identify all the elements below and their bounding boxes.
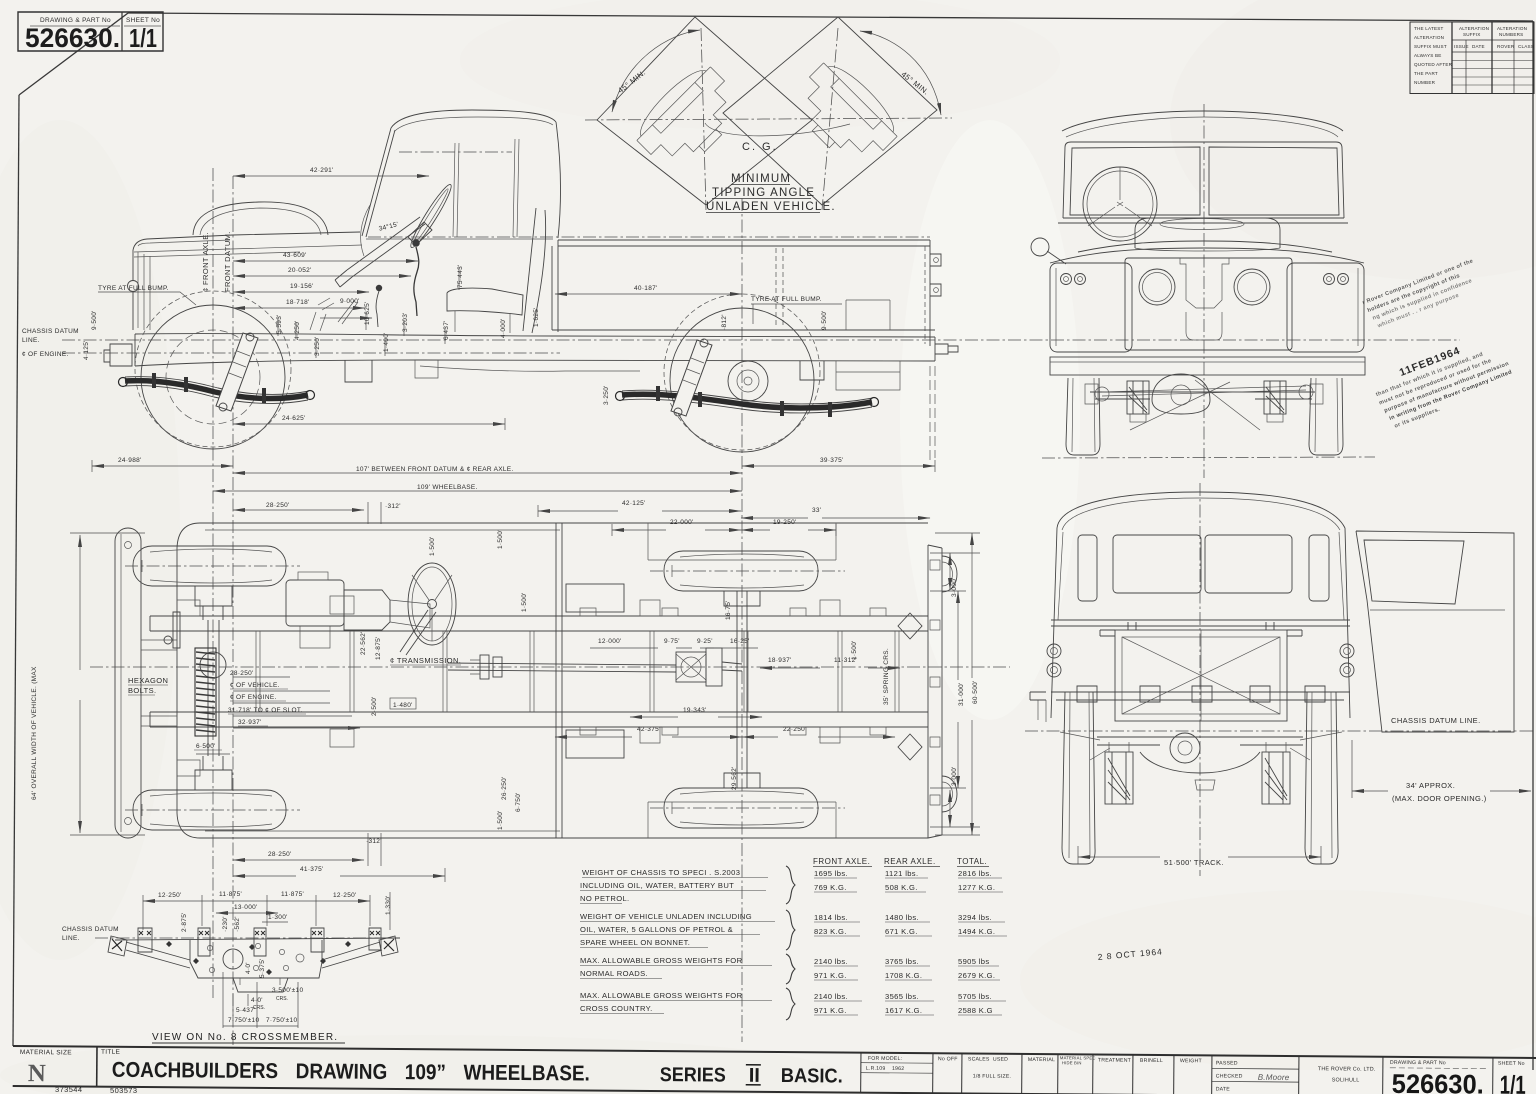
svg-text:7·750'±10: 7·750'±10 bbox=[228, 1017, 259, 1024]
svg-text:MAX. ALLOWABLE GROSS WEIGHT: MAX. ALLOWABLE GROSS WEIGHTS FOR bbox=[580, 956, 743, 965]
svg-text:II: II bbox=[749, 1065, 760, 1087]
svg-text:ALTERATION: ALTERATION bbox=[1459, 26, 1489, 31]
svg-text:41·375': 41·375' bbox=[300, 866, 324, 873]
svg-text:2816 lbs.: 2816 lbs. bbox=[958, 869, 992, 878]
svg-text:18·718': 18·718' bbox=[286, 299, 310, 306]
svg-text:1·500': 1·500' bbox=[851, 640, 858, 660]
svg-text:2·500': 2·500' bbox=[371, 696, 378, 716]
svg-text:REAR AXLE.: REAR AXLE. bbox=[884, 857, 936, 866]
svg-text:UNLADEN VEHICLE.: UNLADEN VEHICLE. bbox=[706, 201, 836, 213]
svg-text:373544: 373544 bbox=[55, 1085, 82, 1094]
svg-text:BOLTS.: BOLTS. bbox=[128, 686, 157, 695]
svg-text:C. G.: C. G. bbox=[742, 141, 778, 153]
svg-text:2588 K.G: 2588 K.G bbox=[958, 1006, 993, 1015]
svg-text:¢ TRANSMISSION.: ¢ TRANSMISSION. bbox=[390, 656, 461, 665]
svg-text:11·875': 11·875' bbox=[219, 891, 242, 898]
svg-text:2140 lbs.: 2140 lbs. bbox=[814, 957, 848, 966]
svg-text:503573: 503573 bbox=[110, 1086, 137, 1094]
svg-text:FOR MODEL:: FOR MODEL: bbox=[868, 1056, 902, 1062]
svg-text:FRONT AXLE.: FRONT AXLE. bbox=[813, 857, 870, 866]
svg-text:1/1: 1/1 bbox=[1500, 1070, 1526, 1094]
svg-text:SERIES: SERIES bbox=[660, 1064, 726, 1087]
svg-text:ALWAYS BE: ALWAYS BE bbox=[1414, 53, 1442, 58]
svg-text:60·500': 60·500' bbox=[972, 680, 979, 704]
svg-text:28·250': 28·250' bbox=[266, 502, 290, 509]
svg-text:TYRE AT FULL BUMP.: TYRE AT FULL BUMP. bbox=[98, 285, 169, 292]
svg-text:¢ OF ENGINE.: ¢ OF ENGINE. bbox=[22, 351, 69, 358]
svg-text:3·250': 3·250' bbox=[314, 336, 321, 356]
svg-text:9·500': 9·500' bbox=[91, 310, 98, 330]
svg-text:CLASS: CLASS bbox=[1518, 44, 1534, 49]
svg-text:·812': ·812' bbox=[721, 314, 728, 330]
svg-text:1494 K.G.: 1494 K.G. bbox=[958, 927, 995, 936]
svg-text:No OFF: No OFF bbox=[938, 1056, 958, 1062]
svg-text:2679 K.G.: 2679 K.G. bbox=[958, 971, 995, 980]
svg-text:1/1: 1/1 bbox=[129, 23, 157, 53]
svg-text:109' WHEELBASE.: 109' WHEELBASE. bbox=[417, 484, 478, 491]
svg-text:L.R.109 1962: L.R.109 1962 bbox=[866, 1066, 905, 1072]
svg-text:508 K.G.: 508 K.G. bbox=[885, 883, 918, 892]
svg-text:5·437': 5·437' bbox=[236, 1007, 256, 1014]
svg-text:24·988': 24·988' bbox=[118, 457, 142, 464]
svg-text:18·937': 18·937' bbox=[768, 657, 792, 664]
svg-text:35' SPRING CRS.: 35' SPRING CRS. bbox=[883, 648, 890, 705]
svg-text:13·000': 13·000' bbox=[234, 904, 258, 911]
svg-text:TIPPING ANGLE: TIPPING ANGLE bbox=[712, 187, 815, 199]
svg-text:5·375': 5·375' bbox=[259, 958, 266, 978]
svg-text:3·000': 3·000' bbox=[951, 577, 958, 597]
svg-text:NUMBERS: NUMBERS bbox=[1499, 32, 1523, 37]
svg-text:40·187': 40·187' bbox=[634, 285, 658, 292]
svg-text:CHECKED: CHECKED bbox=[1216, 1073, 1243, 1079]
svg-text:4·250': 4·250' bbox=[294, 320, 301, 340]
svg-text:4·000': 4·000' bbox=[500, 318, 507, 338]
svg-text:31·718' TO ¢ OF SLOT.: 31·718' TO ¢ OF SLOT. bbox=[228, 707, 303, 714]
svg-text:SUFFIX MUST: SUFFIX MUST bbox=[1414, 44, 1447, 49]
svg-text:5·593': 5·593' bbox=[276, 314, 283, 334]
svg-text:CHASSIS DATUM: CHASSIS DATUM bbox=[62, 926, 119, 933]
svg-text:42·291': 42·291' bbox=[310, 167, 334, 174]
svg-text:1·625': 1·625' bbox=[533, 307, 540, 327]
svg-text:7·750'±10: 7·750'±10 bbox=[266, 1017, 297, 1024]
svg-text:1·500': 1·500' bbox=[497, 529, 504, 549]
svg-text:6·750': 6·750' bbox=[515, 792, 522, 812]
svg-text:CHASSIS DATUM LINE.: CHASSIS DATUM LINE. bbox=[1391, 716, 1481, 725]
svg-text:ROVER: ROVER bbox=[1497, 44, 1515, 49]
svg-text:10·625': 10·625' bbox=[364, 301, 371, 325]
svg-text:BASIC.: BASIC. bbox=[781, 1065, 843, 1087]
svg-text:823 K.G.: 823 K.G. bbox=[814, 927, 847, 936]
svg-text:3·000': 3·000' bbox=[951, 766, 958, 786]
svg-text:SCALES USED: SCALES USED bbox=[968, 1057, 1008, 1063]
svg-text:1·500': 1·500' bbox=[429, 536, 436, 556]
svg-text:3294 lbs.: 3294 lbs. bbox=[958, 913, 992, 922]
svg-text:CROSS COUNTRY.: CROSS COUNTRY. bbox=[580, 1004, 653, 1013]
svg-text:1617 K.G.: 1617 K.G. bbox=[885, 1006, 922, 1015]
svg-text:NORMAL ROADS.: NORMAL ROADS. bbox=[580, 969, 648, 978]
svg-text:34' APPROX.: 34' APPROX. bbox=[1406, 781, 1455, 790]
svg-text:6·437': 6·437' bbox=[443, 320, 450, 340]
svg-text:12·250': 12·250' bbox=[333, 892, 357, 899]
svg-text:THE PART: THE PART bbox=[1414, 71, 1438, 76]
svg-text:43·609': 43·609' bbox=[283, 252, 307, 259]
svg-text:PASSED: PASSED bbox=[1216, 1060, 1238, 1066]
svg-text:3·203': 3·203' bbox=[402, 312, 409, 332]
svg-text:NUMBER: NUMBER bbox=[1414, 80, 1436, 85]
svg-text:671 K.G.: 671 K.G. bbox=[885, 927, 918, 936]
svg-text:¢ OF VEHICLE.: ¢ OF VEHICLE. bbox=[230, 682, 280, 689]
svg-text:19·156': 19·156' bbox=[290, 283, 314, 290]
svg-text:1·500': 1·500' bbox=[521, 592, 528, 612]
svg-text:51·500' TRACK.: 51·500' TRACK. bbox=[1164, 858, 1224, 867]
svg-text:29·562': 29·562' bbox=[731, 766, 738, 790]
svg-text:19·343': 19·343' bbox=[683, 707, 707, 714]
svg-text:3565 lbs.: 3565 lbs. bbox=[885, 992, 919, 1001]
svg-text:22·562': 22·562' bbox=[360, 631, 367, 655]
svg-text:TYRE AT FULL BUMP.: TYRE AT FULL BUMP. bbox=[751, 296, 822, 303]
svg-text:971 K.G.: 971 K.G. bbox=[814, 1006, 847, 1015]
svg-text:LINE.: LINE. bbox=[22, 337, 40, 344]
svg-text:9·500': 9·500' bbox=[821, 310, 828, 330]
svg-text:ALTERATION: ALTERATION bbox=[1497, 26, 1527, 31]
svg-text:20·052': 20·052' bbox=[288, 267, 312, 274]
svg-text:DATE: DATE bbox=[1472, 44, 1485, 49]
svg-text:·562': ·562' bbox=[234, 916, 241, 932]
svg-text:33': 33' bbox=[812, 507, 821, 514]
svg-text:1·480': 1·480' bbox=[393, 702, 413, 709]
svg-text:526630.: 526630. bbox=[1392, 1069, 1484, 1094]
svg-text:31·000': 31·000' bbox=[958, 682, 965, 706]
svg-text:16·75': 16·75' bbox=[725, 600, 732, 620]
svg-text:DRAWING & PART No: DRAWING & PART No bbox=[1390, 1060, 1446, 1066]
svg-text:(MAX. DOOR OPENING.): (MAX. DOOR OPENING.) bbox=[1392, 794, 1487, 803]
svg-text:9·000': 9·000' bbox=[340, 298, 360, 305]
svg-text:TOTAL.: TOTAL. bbox=[957, 857, 987, 866]
svg-text:HEXAGON: HEXAGON bbox=[128, 676, 168, 685]
svg-text:5905 lbs: 5905 lbs bbox=[958, 957, 990, 966]
svg-text:1121 lbs.: 1121 lbs. bbox=[885, 869, 918, 878]
svg-text:3765 lbs.: 3765 lbs. bbox=[885, 957, 919, 966]
svg-text:24·625': 24·625' bbox=[282, 415, 306, 422]
svg-text:MAX. ALLOWABLE GROSS WEIGHT: MAX. ALLOWABLE GROSS WEIGHTS FOR bbox=[580, 991, 743, 1000]
svg-text:39·375': 39·375' bbox=[820, 457, 844, 464]
svg-text:INCLUDING OIL, WATER, BATTERY: INCLUDING OIL, WATER, BATTERY BUT bbox=[580, 881, 734, 890]
svg-text:107' BETWEEN FRONT DATUM &: 107' BETWEEN FRONT DATUM & ¢ REAR AXLE. bbox=[356, 466, 514, 473]
svg-text:N: N bbox=[28, 1060, 46, 1087]
svg-text:4·125': 4·125' bbox=[83, 340, 90, 360]
svg-text:MATERIAL SIZE: MATERIAL SIZE bbox=[20, 1049, 72, 1056]
svg-text:1·400': 1·400' bbox=[383, 332, 390, 352]
svg-text:12·875': 12·875' bbox=[375, 636, 382, 660]
svg-text:HIDE BIN: HIDE BIN bbox=[1062, 1060, 1082, 1065]
svg-text:1·330': 1·330' bbox=[385, 895, 392, 915]
svg-text:64' OVERALL WIDTH OF VEHICL: 64' OVERALL WIDTH OF VEHICLE. (MAX bbox=[31, 666, 38, 800]
svg-text:VIEW ON No. 8 CROSSMEMBER.: VIEW ON No. 8 CROSSMEMBER. bbox=[152, 1032, 338, 1043]
svg-text:CHASSIS DATUM: CHASSIS DATUM bbox=[22, 328, 79, 335]
svg-text:3·250': 3·250' bbox=[603, 385, 610, 405]
svg-text:3·500'±10: 3·500'±10 bbox=[272, 987, 303, 994]
svg-text:THE LATEST: THE LATEST bbox=[1414, 26, 1443, 31]
svg-text:ISSUE: ISSUE bbox=[1454, 44, 1469, 49]
svg-text:ALTERATION: ALTERATION bbox=[1414, 35, 1444, 40]
svg-text:1/8 FULL SIZE.: 1/8 FULL SIZE. bbox=[973, 1074, 1011, 1080]
svg-text:6·500': 6·500' bbox=[196, 743, 216, 750]
svg-text:4·0': 4·0' bbox=[245, 962, 252, 974]
svg-text:19·250': 19·250' bbox=[773, 519, 797, 526]
svg-text:1708 K.G.: 1708 K.G. bbox=[885, 971, 922, 980]
svg-text:28·250': 28·250' bbox=[230, 670, 254, 677]
svg-text:LINE.: LINE. bbox=[62, 935, 80, 942]
svg-text:28·250': 28·250' bbox=[268, 851, 292, 858]
svg-text:769 K.G.: 769 K.G. bbox=[814, 883, 847, 892]
svg-text:¢ OF ENGINE.: ¢ OF ENGINE. bbox=[230, 694, 277, 701]
svg-text:WEIGHT OF CHASSIS TO SPECI . S: WEIGHT OF CHASSIS TO SPECI . S.2003 bbox=[582, 868, 740, 877]
svg-text:B.Moore: B.Moore bbox=[1258, 1073, 1290, 1082]
svg-text:12·000': 12·000' bbox=[598, 638, 622, 645]
svg-text:2140 lbs.: 2140 lbs. bbox=[814, 992, 848, 1001]
svg-text:526630.: 526630. bbox=[25, 23, 120, 53]
svg-text:THE ROVER Co. LTD.: THE ROVER Co. LTD. bbox=[1318, 1066, 1376, 1072]
svg-text:SHEET No: SHEET No bbox=[1498, 1061, 1525, 1067]
svg-text:DATE: DATE bbox=[1216, 1086, 1231, 1092]
svg-text:SPARE WHEEL ON BONNET.: SPARE WHEEL ON BONNET. bbox=[580, 938, 690, 947]
svg-text:12·250': 12·250' bbox=[158, 892, 182, 899]
svg-text:971 K.G.: 971 K.G. bbox=[814, 971, 847, 980]
svg-text:1·500': 1·500' bbox=[497, 810, 504, 830]
svg-text:32·937': 32·937' bbox=[238, 719, 262, 726]
svg-text:CRS.: CRS. bbox=[276, 996, 288, 1002]
svg-text:42·125': 42·125' bbox=[622, 500, 646, 507]
svg-text:SUFFIX: SUFFIX bbox=[1463, 32, 1481, 37]
svg-text:WEIGHT OF VEHICLE UNLADEN IN: WEIGHT OF VEHICLE UNLADEN INCLUDING bbox=[580, 912, 752, 921]
svg-text:2·875': 2·875' bbox=[181, 912, 188, 932]
svg-text:1695 lbs.: 1695 lbs. bbox=[814, 869, 848, 878]
svg-text:5705 lbs.: 5705 lbs. bbox=[958, 992, 992, 1001]
svg-text:9·75': 9·75' bbox=[664, 638, 680, 645]
svg-text:9·25': 9·25' bbox=[697, 638, 713, 645]
svg-text:SOLIHULL: SOLIHULL bbox=[1332, 1077, 1360, 1083]
svg-text:1814 lbs.: 1814 lbs. bbox=[814, 913, 848, 922]
svg-text:75·443': 75·443' bbox=[457, 264, 464, 288]
svg-text:·312': ·312' bbox=[366, 838, 382, 845]
svg-text:·312': ·312' bbox=[385, 503, 401, 510]
svg-text:1480 lbs.: 1480 lbs. bbox=[885, 913, 919, 922]
svg-text:COACHBUILDERS DRAWING 109” WHE: COACHBUILDERS DRAWING 109” WHEELBASE. bbox=[112, 1058, 590, 1086]
svg-text:MATERIAL: MATERIAL bbox=[1028, 1057, 1055, 1063]
svg-text:OIL, WATER, 5 GALLONS OF P: OIL, WATER, 5 GALLONS OF PETROL & bbox=[580, 925, 733, 934]
svg-text:1277 K.G.: 1277 K.G. bbox=[958, 883, 995, 892]
svg-text:BRINELL: BRINELL bbox=[1140, 1058, 1163, 1064]
svg-text:1·300': 1·300' bbox=[268, 914, 288, 921]
svg-text:26·250': 26·250' bbox=[501, 776, 508, 800]
svg-text:22·000': 22·000' bbox=[670, 519, 694, 526]
svg-text:·230': ·230' bbox=[222, 916, 229, 932]
svg-text:QUOTED AFTER: QUOTED AFTER bbox=[1414, 62, 1453, 67]
svg-text:TREATMENT: TREATMENT bbox=[1098, 1058, 1132, 1064]
svg-text:NO PETROL.: NO PETROL. bbox=[580, 894, 630, 903]
svg-text:11·875': 11·875' bbox=[281, 891, 304, 898]
svg-text:WEIGHT: WEIGHT bbox=[1180, 1058, 1203, 1064]
svg-text:TITLE: TITLE bbox=[101, 1049, 121, 1056]
svg-text:MINIMUM: MINIMUM bbox=[731, 173, 791, 185]
